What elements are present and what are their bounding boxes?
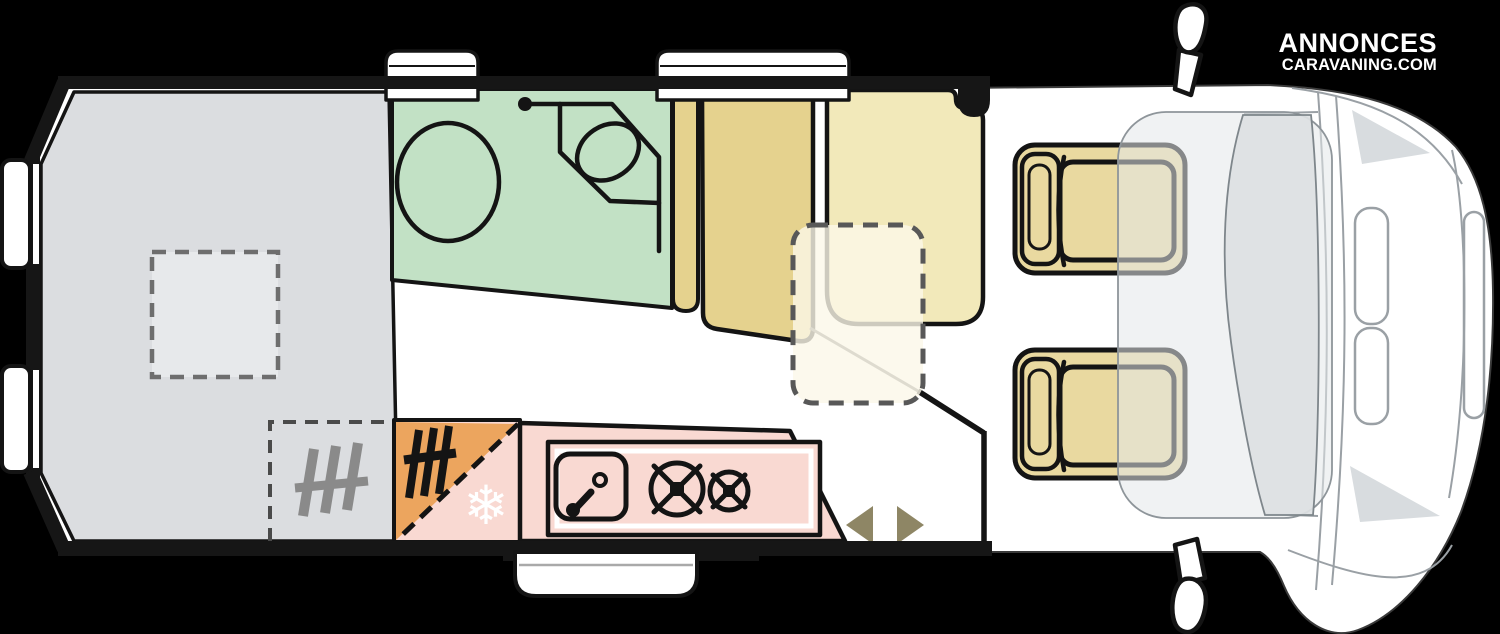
wall-top: [58, 76, 990, 89]
floorplan-canvas: ❄: [0, 0, 1500, 634]
mirror-bottom: [1172, 539, 1206, 632]
brand-logo: ANNONCES CARAVANING.COM: [1278, 28, 1437, 74]
skylight-dashed: [152, 252, 278, 377]
mirror-head: [1172, 579, 1206, 632]
floorplan-svg: ❄: [0, 0, 1500, 634]
wardrobe-area: [673, 91, 813, 341]
wardrobe-strip: [673, 91, 698, 311]
window-top-large: [657, 51, 849, 100]
wall-end-tab: [958, 76, 990, 117]
kitchen-area: ❄: [394, 420, 845, 542]
step-tread: [515, 552, 697, 596]
tail-light-bottom: [2, 366, 30, 472]
sink-lever-bulb: [566, 503, 580, 517]
table-dashed: [793, 225, 923, 403]
bathroom-area: [392, 89, 672, 308]
rear-bed-area: [41, 92, 398, 541]
logo-line-1: ANNONCES: [1278, 28, 1437, 58]
window-top-small: [386, 51, 478, 100]
tail-strip-bottom: [33, 370, 39, 468]
mirror-head: [1175, 4, 1206, 52]
logo-line-2: CARAVANING.COM: [1282, 56, 1437, 74]
snowflake-icon: ❄: [463, 476, 508, 536]
cab-front: [958, 85, 1493, 633]
tail-light-top: [2, 160, 30, 268]
tail-strip-top: [33, 164, 39, 264]
